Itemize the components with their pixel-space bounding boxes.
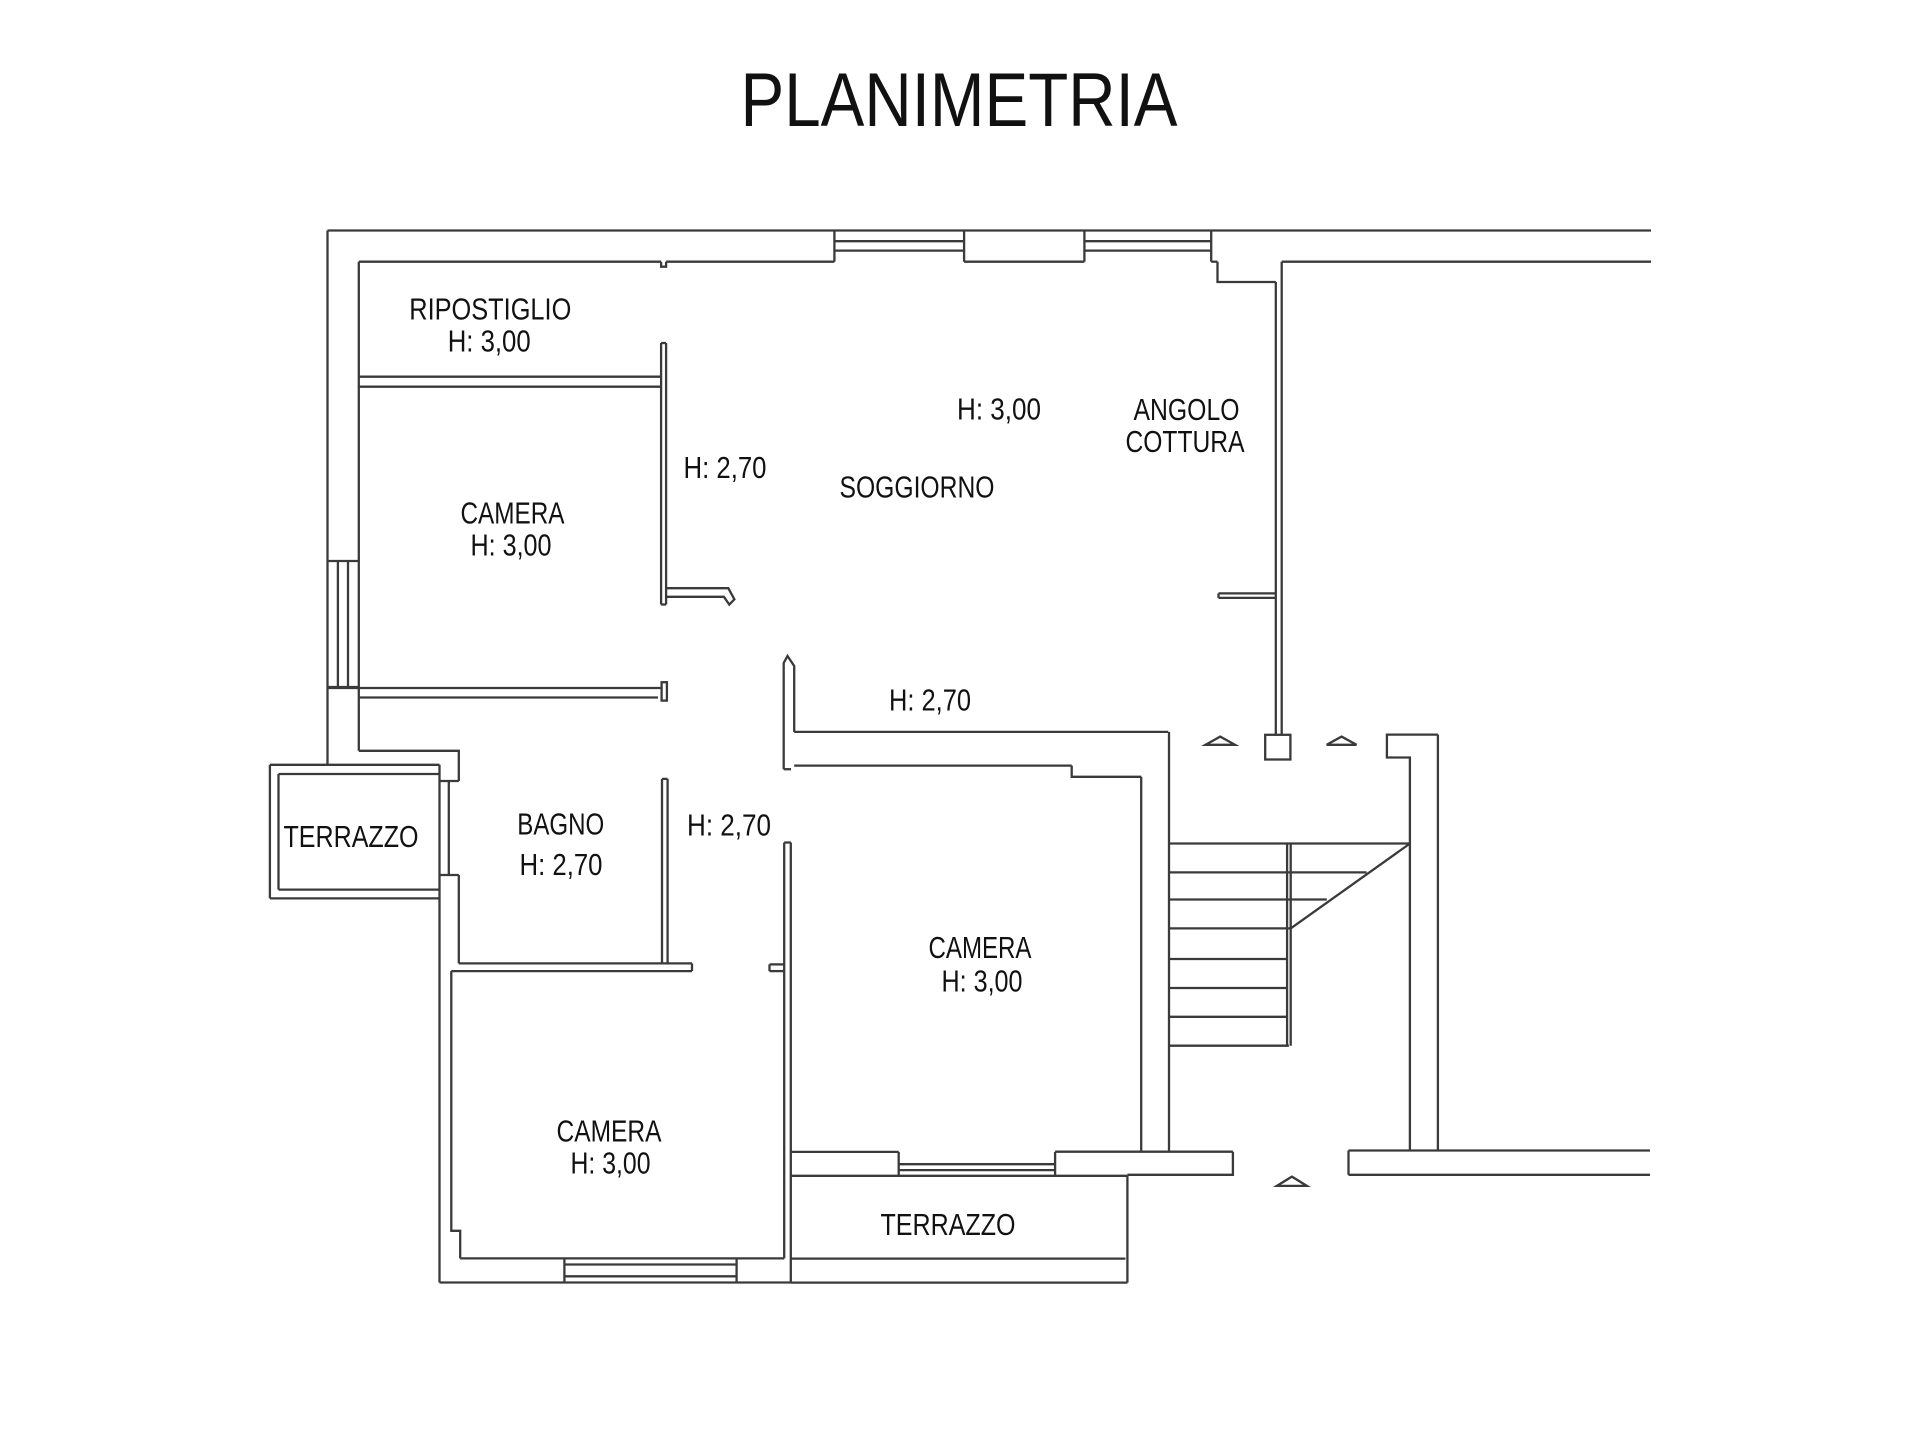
svg-text:PLANIMETRIA: PLANIMETRIA (741, 58, 1178, 143)
svg-text:TERRAZZO: TERRAZZO (284, 819, 419, 854)
svg-text:H: 3,00: H: 3,00 (957, 391, 1041, 426)
svg-text:H: 2,70: H: 2,70 (889, 683, 971, 718)
svg-text:CAMERA: CAMERA (557, 1114, 662, 1149)
svg-text:COTTURA: COTTURA (1126, 424, 1245, 459)
svg-text:H: 2,70: H: 2,70 (687, 808, 771, 843)
svg-text:ANGOLO: ANGOLO (1134, 392, 1240, 427)
svg-text:H: 2,70: H: 2,70 (520, 847, 603, 882)
svg-text:H: 3,00: H: 3,00 (571, 1146, 651, 1181)
svg-text:H: 3,00: H: 3,00 (942, 964, 1023, 999)
svg-text:H: 3,00: H: 3,00 (471, 528, 552, 563)
svg-text:H: 2,70: H: 2,70 (684, 450, 767, 485)
svg-text:TERRAZZO: TERRAZZO (881, 1207, 1016, 1242)
svg-text:CAMERA: CAMERA (461, 496, 565, 531)
svg-text:BAGNO: BAGNO (517, 807, 604, 842)
svg-text:SOGGIORNO: SOGGIORNO (840, 470, 995, 505)
svg-text:CAMERA: CAMERA (929, 930, 1032, 965)
svg-text:RIPOSTIGLIO: RIPOSTIGLIO (409, 291, 571, 326)
svg-text:H: 3,00: H: 3,00 (448, 324, 531, 359)
